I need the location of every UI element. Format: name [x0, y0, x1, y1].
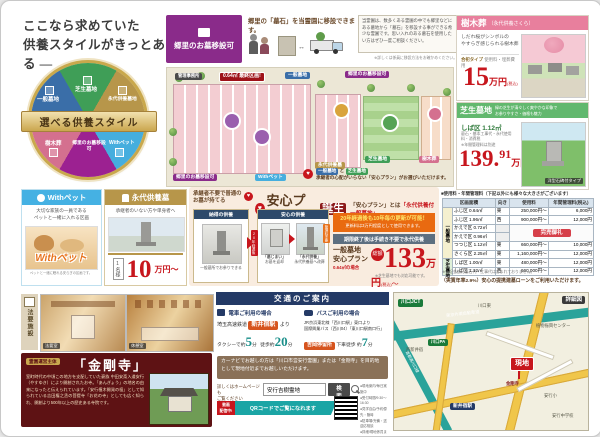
urn-icon [122, 194, 129, 202]
houyou-photo1-caption: 法要室 [43, 343, 60, 349]
wheel-sector-relocation: 郷里のお墓移設可 [72, 141, 106, 153]
person-body [249, 41, 258, 54]
wheel-sector-jumoku: 樹木葬 [45, 139, 62, 147]
nattoku-box: 納得の供養 一般墓所でお参りできる [193, 209, 249, 283]
wheel-sector-ippan: 一般墓地 [37, 95, 59, 103]
arrow-dots: ↔ [298, 44, 305, 51]
headstone-icon [546, 141, 562, 163]
access-block: 交通のご案内 電車ご利用の場合 埼玉高速鉄道 新井宿駅 より タクシーで約5分 … [216, 292, 389, 429]
relocation-title: 郷里のお墓移設可 [174, 40, 234, 51]
anshin-price-label: 一般墓地 安心プラン 0.64㎡の場合 [333, 247, 373, 270]
eitai-icon [118, 86, 127, 95]
tower-shape [307, 227, 314, 247]
qr-ribbon: QRコードでご覧になれます [235, 401, 337, 415]
pa-badge: 川口PA [428, 339, 448, 346]
flower-circle-pink [429, 108, 441, 120]
chu-label: 安行中学校 [552, 413, 573, 419]
wheel-sector-eitai: 永代供養墓地 [108, 95, 137, 102]
gaikan-label: 東京外環自動車道 [446, 309, 480, 319]
withpet-desc: 大切な家族の一員である ペットと一緒に入れる区画 [22, 208, 101, 222]
nishi-label: 西新井宿 [406, 347, 423, 353]
jumokuso-price: 15万円(税込) [463, 64, 518, 90]
table-row: かえで区 0.72㎡ 完売御礼 [443, 224, 594, 233]
nattoku-caption: 一般墓所でお参りできる [196, 266, 246, 271]
heart-icon: ♥ [244, 192, 253, 201]
station-badge: 新井宿駅 [248, 321, 278, 330]
tree-icon [169, 158, 177, 166]
no-admin-fee-tag: 管理料不要 [323, 224, 330, 243]
tree-on-truck [316, 32, 325, 41]
headstone-base [542, 161, 564, 166]
person-icon [250, 34, 257, 41]
monument-base [136, 242, 156, 246]
tower-base [303, 247, 318, 250]
sofa-shape [141, 327, 199, 341]
jumoku-icon [49, 148, 58, 157]
relocation-badge-top: 郷里のお墓移設可 [345, 71, 389, 78]
bus-stop-badge: 吉岡停留所 [304, 342, 335, 350]
gravestone-icon [198, 28, 210, 37]
withpet-logo: Withペット [28, 249, 94, 264]
altar-shape [71, 315, 95, 339]
grave-return-shape [270, 229, 283, 247]
shibafu-includes: 墓石・基本工事代・永代使用料・消費税 ※年間管理料は別途 [461, 131, 519, 147]
table-footnote: ※上記金額に墓石代・工事代は含まれておりません。 [442, 269, 596, 275]
bus-icon [304, 310, 313, 316]
jumokuso-desc: しだれ桜がシンボルの やすらぎ感じられる樹木葬 [461, 34, 519, 48]
table-row: 一般墓地 ふじ区 0.64㎡東 250,000円〜6,000円 [443, 207, 594, 216]
train-header: 電車ご利用の場合 [217, 309, 301, 317]
tree-icon [367, 84, 375, 92]
eitai-price: 1名様 10 万円〜 [108, 253, 183, 283]
price-table-title: ■使用料・年間管理料（下記以外にも様々な大きさがございます） [441, 191, 596, 197]
movie-badge: 動画配信中! [217, 401, 235, 415]
relocation-illustration: ↔ [248, 28, 348, 62]
paw-icon [37, 194, 45, 202]
eitai-price-label: 1名様 [113, 258, 124, 280]
grave-photo [202, 224, 242, 264]
train-line-row: 埼玉高速鉄道 新井宿駅 より [217, 321, 301, 330]
relocation-caption: ※詳しくは係員に移設方法をお確かめください。 [361, 55, 457, 61]
shibafu-card: 芝生墓地 緑の芝生が清々しく爽やかな印象で お参りやすさ・価格も魅力 しば区 1… [456, 102, 589, 190]
table-row: ふじ区 1.96㎡西 900,000円〜12,000円 [443, 216, 594, 225]
shibafu-photo: 洋型石碑付タイプ [521, 122, 586, 187]
plot-area-pink-left [173, 84, 311, 174]
center-label: 植物振興センター [536, 323, 570, 329]
anshin-box-header: 安心の供養 [258, 210, 328, 219]
loan-note: （実質年率2.9%）安心の提携建墓ローンをご利用いただけます。 [441, 277, 597, 284]
bus-header: バスご利用の場合 [304, 309, 388, 317]
stone-grave [528, 65, 542, 74]
kongoji-title: 「金剛寺」 [73, 355, 148, 374]
kongoji-box: 霊園運営主体 「金剛寺」 室町時代の中頃この地方を支配していた豪族 中田安斎入道… [21, 353, 212, 427]
houyou-label: 法要施設 [21, 294, 38, 350]
facility-icon [24, 297, 35, 307]
carnavi-box: カーナビでお越しの方は「川口市営安行霊園」または「金剛寺」を目的地として現地付近… [217, 356, 388, 379]
wheel-sector-shibafu: 芝生墓地 [75, 85, 97, 93]
temple-body [168, 396, 192, 412]
jumoku-badge: 樹木葬 [419, 156, 439, 163]
tree-icon [169, 128, 177, 136]
jct-badge: 川口JCT [398, 299, 423, 307]
road-minor [485, 331, 554, 360]
web-note: 詳しくはホームページも ご覧ください [217, 384, 261, 402]
kongoji-body: 室町時代の中頃この地方を支配していた豪族 中田安斎入道安行（やすゆき）により開創… [26, 374, 144, 406]
withpet-photo: Withペット [25, 226, 98, 270]
access-notes: ●現地案内/毎日実施中 ●受付時間/9:30〜16:30 ●見学自由/予約優先・… [360, 384, 390, 437]
stone-grave [548, 63, 562, 72]
station-map-badge: 新井宿駅 [450, 403, 475, 410]
anshin-panel: 承継者不要で普通の お墓が持てる ♥ 納得の供養 一般墓所でお参りできる ♥ 安… [189, 187, 439, 286]
anshin-lead: 承継者不要で普通の お墓が持てる ♥ [193, 191, 249, 206]
flower-circle [225, 114, 239, 128]
eitai-caption: 「永代供養」永代供養墓へ改葬 [294, 255, 325, 266]
table-row: 芝生墓地 しば区 1.00㎡東 480,000円〜12,000円 [443, 259, 594, 268]
gravestone-shape [217, 231, 226, 251]
gravestone-base [213, 251, 230, 255]
withpet-tagline: ペットと一緒に眠れる安らぎの区画です。 [25, 270, 97, 275]
wheel-1 [314, 49, 319, 54]
area-map: 東京外環自動車道 首都高川口線 川口JCT 川口東 川口PA 西新井宿 新井宿駅… [393, 292, 589, 431]
anshin-price-note: ※芝生墓地でも対応可能です。 [375, 273, 427, 279]
plot-area-right [421, 96, 451, 160]
eitai-card: 永代供養墓 承継者のいない方や単身者へ 1名様 10 万円〜 [104, 189, 187, 286]
person-body-2 [260, 44, 269, 54]
temple-roof [160, 388, 198, 396]
flower-circle [255, 130, 269, 144]
shibafu-header: 芝生墓地 緑の芝生が清々しく爽やかな印象で お参りやすさ・価格も魅力 [457, 103, 588, 118]
qr-code [334, 396, 358, 420]
headline-line1: ここなら求めていた [23, 17, 173, 36]
shibafu-photo-caption: 洋型石碑付タイプ [545, 178, 583, 184]
nattoku-header: 納得の供養 [194, 210, 248, 219]
shibafu-desc: 緑の芝生が清々しく爽やかな印象で お参りやすさ・価格も魅力 [495, 105, 557, 116]
sitemap-note: ♥ 一般墓地 と 芝生墓地 承継者の心配がいらない「安心プラン」がお選びいただけ… [303, 168, 451, 182]
withpet-badge: Withペット [255, 174, 286, 181]
train-icon [217, 309, 225, 316]
office-badge: 管理事務所 [175, 73, 202, 80]
houyou-photo2-caption: 休憩室 [129, 343, 146, 349]
search-button[interactable]: 検索 [328, 383, 350, 396]
ceiling-beam [51, 301, 115, 307]
jumokuso-card: 樹木葬 （永代供養さくら） しだれ桜がシンボルの やすらぎ感じられる樹木葬 合祀… [456, 15, 589, 101]
flower-circle-gold [335, 104, 348, 117]
shibafu-icon [83, 76, 92, 85]
sho-label: 安行小 [544, 393, 557, 399]
relocation-note: 当霊園は、数多くある霊園の中でも郷里などにある墓地から「墓石」を移設する事ができ… [358, 15, 457, 53]
eitai-tower-photo [296, 223, 325, 255]
operator-badge: 霊園運営主体 [26, 358, 60, 365]
wheel-center-band: 選べる供養スタイル [21, 111, 157, 132]
train-time-row: タクシーで約5分 徒歩約20分 [217, 334, 301, 350]
monument-icon [141, 222, 151, 242]
tree-icon [443, 88, 451, 96]
withpet-header: Withペット [22, 190, 101, 205]
tree-icon [317, 80, 325, 88]
relocation-badge-bottom: 郷里のお墓移設可 [173, 174, 217, 181]
access-title: 交通のご案内 [216, 292, 389, 305]
bus-time-row: 吉岡停留所 下車徒歩 約7分 [304, 335, 388, 350]
heart-icon: ♥ [303, 169, 313, 179]
red-arrow-icon [289, 234, 295, 244]
relocation-card: 郷里のお墓移設可 [166, 15, 242, 63]
flyer-page: ここなら求めていた 供養スタイルがきっとある — 一般墓地 芝生墓地 永代供養墓… [0, 0, 600, 437]
access-bus: バスご利用の場合 JR京浜東北線「西川口駅」東口より 国際興業バス〔西川04〕「… [304, 309, 388, 350]
ippan-badge: 一般墓地 [285, 72, 310, 79]
person-icon-2 [261, 37, 268, 44]
eitai-photo [108, 217, 185, 252]
flower-circle-green [383, 116, 397, 130]
anshin-price: 総額133万円(税込)〜 [371, 245, 439, 291]
wheel-2 [333, 49, 338, 54]
kongoji-map-label: 金剛寺 [506, 381, 519, 387]
withpet-icon [115, 148, 124, 157]
genchi-pointer [518, 371, 520, 379]
cherry-tree-icon [544, 37, 564, 53]
eitai-header: 永代供養墓 [105, 190, 186, 205]
wheel-sector-withpet: Withペット [109, 139, 135, 146]
genchi-badge: 現地 [510, 357, 534, 371]
withpet-card: Withペット 大切な家族の一員である ペットと一緒に入れる区画 Withペット… [21, 189, 102, 286]
jumokuso-header: 樹木葬 （永代供養さくら） [457, 16, 588, 30]
soldout-badge: 完売御礼 [533, 229, 571, 237]
tree-icon [407, 84, 415, 92]
detail-badge: 詳細図 [562, 296, 585, 304]
higashi-label: 川口東 [478, 303, 491, 309]
bus-desc: JR京浜東北線「西川口駅」東口より 国際興業バス〔西川04〕「東川口駅南口行」 [304, 320, 388, 332]
arrow-label: 20年経過後 [251, 230, 258, 256]
style-wheel: 一般墓地 芝生墓地 永代供養墓地 樹木葬 郷里のお墓移設可 Withペット 選べ… [31, 63, 145, 177]
houyou-photo-1: 法要室 [40, 294, 126, 352]
kongoji-photo [149, 373, 209, 425]
search-input[interactable] [263, 383, 326, 396]
building-shape [278, 36, 296, 56]
shibafu-badge: 芝生墓地 [365, 156, 390, 163]
jumokuso-photo [521, 34, 586, 98]
table-row: つつじ区 1.12㎡東 660,000円〜10,000円 [443, 241, 594, 250]
anshin-box: 安心の供養 20年経過後 管理料不要 「墓じまい」お墓を返却 「永代供養」永代供… [257, 209, 329, 283]
ceiling-beams [135, 300, 205, 308]
total-badge: 総額 [371, 248, 384, 261]
hakajimai-caption: 「墓じまい」お墓を返却 [259, 255, 290, 266]
last-plot-badge: 0.64㎡ 最終区画! [219, 72, 265, 82]
table-row: さくら区 2.25㎡東 1,160,000円〜12,000円 [443, 250, 594, 259]
price-table: 区画面積 向き 使用料 年間管理料(税込) 一般墓地 ふじ区 0.64㎡東 25… [442, 198, 594, 276]
ippan-icon [45, 86, 54, 95]
site-map-illustration: 管理事務所 0.64㎡ 最終区画! 一般墓地 郷里のお墓移設可 永代供養墓 芝生… [166, 67, 454, 187]
stone-grave [566, 66, 579, 75]
eitai-desc: 承継者のいない方や単身者へ [105, 208, 186, 214]
hakajimai-photo [261, 223, 290, 255]
access-train: 電車ご利用の場合 埼玉高速鉄道 新井宿駅 より タクシーで約5分 徒歩約20分 [217, 309, 301, 350]
renewal-box: 20年経過後も10年毎の更新が可能！ 更新料は3万円程度として使用できます。 [333, 213, 435, 232]
houyou-photo-2: 休憩室 [126, 294, 214, 352]
